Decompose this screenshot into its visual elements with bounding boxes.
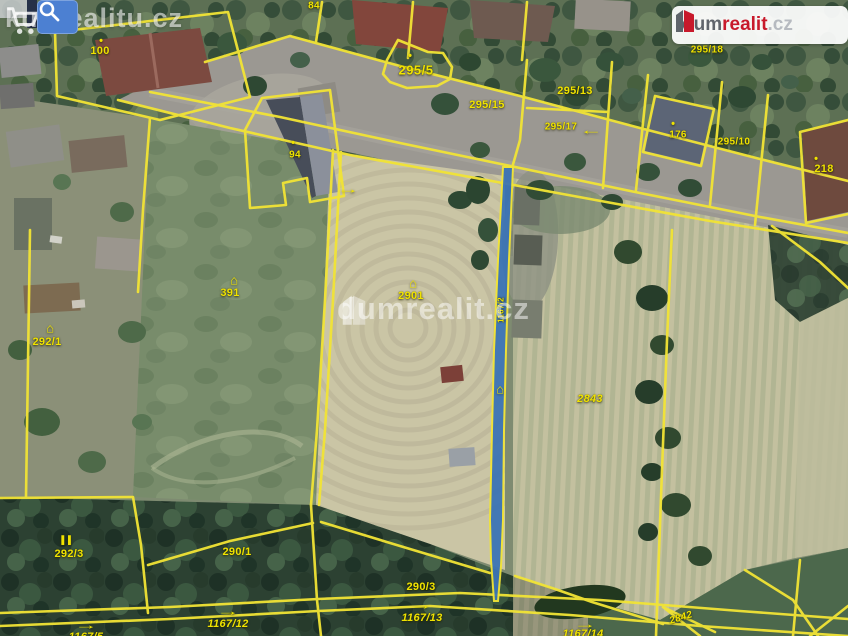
direction-arrow-icon: → <box>410 598 433 612</box>
shopping-cart-icon <box>5 3 41 37</box>
parcel-label-295-5: 295/5 <box>398 63 433 78</box>
parcel-label-84: 84 <box>308 1 320 12</box>
parcel-label-1167-13: 1167/13 <box>401 612 442 624</box>
direction-arrow-icon: → <box>217 604 240 618</box>
parcel-label-290-1: 290/1 <box>222 546 251 558</box>
house-symbol: ⌂ <box>46 321 54 336</box>
direction-arrow-icon: → <box>574 617 597 631</box>
building-icon <box>337 291 371 327</box>
parcel-label-2843: 2843 <box>577 393 603 405</box>
dumrealit-logo[interactable]: dumrealit.cz <box>672 6 848 44</box>
point-symbol: • <box>671 118 675 130</box>
parcel-label-391: 391 <box>220 287 239 299</box>
watermark-kuprealitu: kuprealitu.cz <box>5 3 183 34</box>
logo-text-realit: realit <box>722 14 767 35</box>
forest-symbol: ▌▌ <box>61 536 74 545</box>
search-button[interactable] <box>37 0 78 34</box>
parcel-label-295-17: 295/17 <box>545 122 577 133</box>
parcel-label-295-10: 295/10 <box>718 137 750 148</box>
parcel-label-94: 94 <box>289 150 301 161</box>
direction-arrow-icon: → <box>337 182 360 196</box>
watermark-dumrealit: dumrealit.cz <box>337 291 530 327</box>
parcel-label-290-3: 290/3 <box>406 581 435 593</box>
direction-arrow-icon: ← <box>580 123 603 137</box>
point-symbol: • <box>814 153 818 165</box>
parcel-label-1167-12: 1167/12 <box>207 618 248 630</box>
parcel-label-176: 176 <box>669 130 687 141</box>
house-symbol: ⌂ <box>230 273 238 288</box>
house-symbol: ⌂ <box>409 276 417 291</box>
point-symbol: • <box>408 50 412 62</box>
parcel-label-295-13: 295/13 <box>557 85 592 97</box>
parcel-label-295-15: 295/15 <box>469 99 504 111</box>
point-symbol: • <box>99 35 103 47</box>
house-symbol: ⌂ <box>496 382 504 397</box>
map-viewport[interactable]: 100 • 84 295/5 • 295/15 295/13 295/17 ← … <box>0 0 848 636</box>
dumrealit-building-icon <box>672 6 698 34</box>
logo-text-cz: .cz <box>768 14 793 35</box>
parcel-label-292-1: 292/1 <box>32 336 61 348</box>
parcel-label-292-3: 292/3 <box>54 548 83 560</box>
search-icon <box>37 0 61 24</box>
logo-text: dumrealit.cz <box>682 14 793 36</box>
point-symbol: • <box>291 137 295 149</box>
parcel-label-295-18: 295/18 <box>691 45 723 56</box>
direction-arrow-icon: → <box>75 618 98 632</box>
